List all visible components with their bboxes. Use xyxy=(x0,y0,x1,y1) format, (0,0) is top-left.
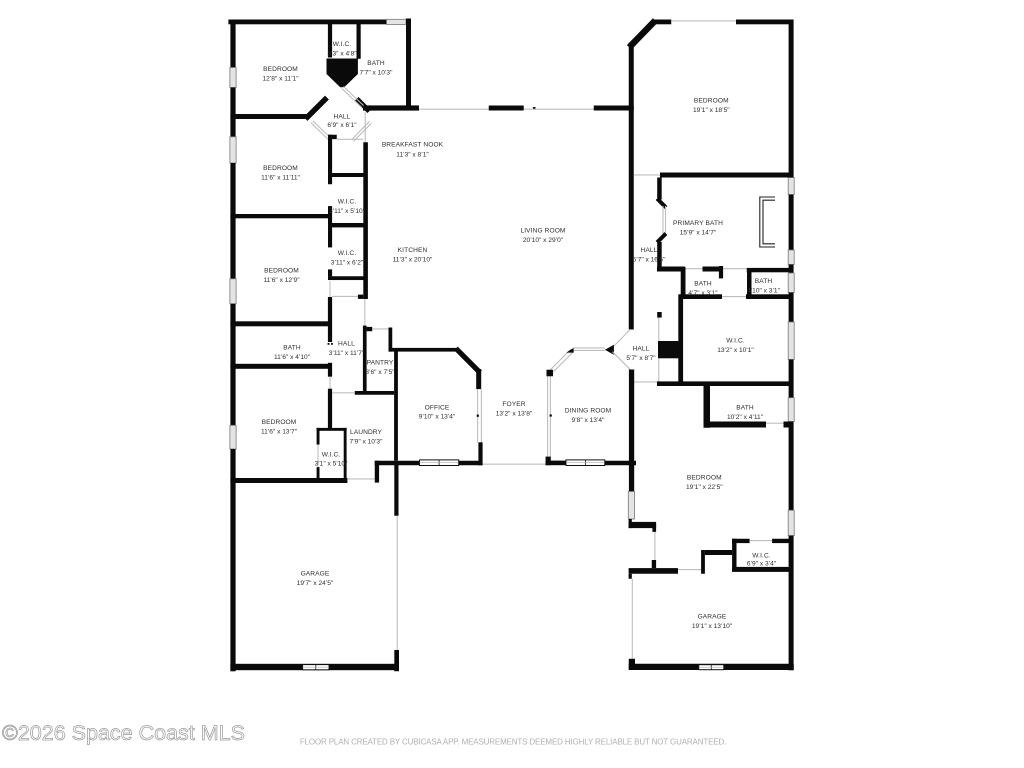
svg-text:9’10" x 13’4": 9’10" x 13’4" xyxy=(419,413,456,420)
svg-text:BATH: BATH xyxy=(736,405,754,412)
svg-text:11’3" x 20’10": 11’3" x 20’10" xyxy=(393,256,433,263)
svg-text:HALL: HALL xyxy=(633,346,650,353)
svg-text:4’7" x 3’1": 4’7" x 3’1" xyxy=(688,290,718,297)
svg-text:BEDROOM: BEDROOM xyxy=(264,268,299,275)
svg-text:11’6" x 13’7": 11’6" x 13’7" xyxy=(261,429,298,436)
svg-text:11’6" x 12’9": 11’6" x 12’9" xyxy=(263,277,300,284)
svg-text:19’7" x 24’5": 19’7" x 24’5" xyxy=(297,580,334,587)
svg-text:W.I.C.: W.I.C. xyxy=(338,199,357,206)
svg-text:W.I.C.: W.I.C. xyxy=(333,41,352,48)
svg-text:BREAKFAST NOOK: BREAKFAST NOOK xyxy=(382,142,444,149)
svg-text:3’11" x 5’10": 3’11" x 5’10" xyxy=(329,208,366,215)
svg-text:4’10" x 3’1": 4’10" x 3’1" xyxy=(747,288,781,295)
svg-text:W.I.C.: W.I.C. xyxy=(726,338,745,345)
svg-text:BEDROOM: BEDROOM xyxy=(262,419,297,426)
svg-text:15’9" x 14’7": 15’9" x 14’7" xyxy=(680,230,717,237)
svg-text:DINING ROOM: DINING ROOM xyxy=(565,408,612,415)
svg-text:GARAGE: GARAGE xyxy=(301,571,330,578)
svg-text:3’1" x 5’10": 3’1" x 5’10" xyxy=(315,461,349,468)
svg-text:W.I.C.: W.I.C. xyxy=(338,250,357,257)
svg-text:FLOOR PLAN CREATED BY CUBICASA: FLOOR PLAN CREATED BY CUBICASA APP. MEAS… xyxy=(300,738,726,747)
svg-text:PRIMARY BATH: PRIMARY BATH xyxy=(673,220,723,227)
svg-text:W.I.C.: W.I.C. xyxy=(752,553,771,560)
svg-text:BATH: BATH xyxy=(694,281,712,288)
svg-text:FOYER: FOYER xyxy=(502,401,525,408)
svg-text:BEDROOM: BEDROOM xyxy=(694,98,729,105)
svg-text:HALL: HALL xyxy=(641,247,658,254)
svg-text:9’8" x 13’4": 9’8" x 13’4" xyxy=(572,417,606,424)
svg-text:10’2" x 4’11": 10’2" x 4’11" xyxy=(727,414,764,421)
svg-text:BEDROOM: BEDROOM xyxy=(687,475,722,482)
svg-text:GARAGE: GARAGE xyxy=(698,614,727,621)
svg-text:6’9" x 3’4": 6’9" x 3’4" xyxy=(747,561,777,568)
svg-text:12’8" x 11’1": 12’8" x 11’1" xyxy=(262,76,299,83)
svg-text:OFFICE: OFFICE xyxy=(425,404,450,411)
svg-text:HALL: HALL xyxy=(334,113,351,120)
svg-text:LIVING ROOM: LIVING ROOM xyxy=(520,228,565,235)
svg-text:13’2" x 10’1": 13’2" x 10’1" xyxy=(717,347,754,354)
svg-text:3’6" x 7’5": 3’6" x 7’5" xyxy=(365,369,395,376)
svg-text:11’6" x 4’10": 11’6" x 4’10" xyxy=(274,354,311,361)
svg-text:7’7" x 10’3": 7’7" x 10’3" xyxy=(360,70,394,77)
svg-text:5’7" x 8’7": 5’7" x 8’7" xyxy=(626,355,656,362)
svg-text:BEDROOM: BEDROOM xyxy=(263,165,298,172)
svg-text:PANTRY: PANTRY xyxy=(367,360,394,367)
svg-text:BATH: BATH xyxy=(755,278,773,285)
svg-text:BATH: BATH xyxy=(283,345,301,352)
svg-text:19’1" x 13’10": 19’1" x 13’10" xyxy=(692,623,733,630)
svg-text:BEDROOM: BEDROOM xyxy=(263,66,298,73)
svg-text:BATH: BATH xyxy=(367,60,385,67)
svg-text:20’10" x 29’0": 20’10" x 29’0" xyxy=(523,237,564,244)
svg-text:LAUNDRY: LAUNDRY xyxy=(350,429,383,436)
svg-text:©2026 Space Coast MLS: ©2026 Space Coast MLS xyxy=(2,721,245,745)
svg-text:7’9" x 10’3": 7’9" x 10’3" xyxy=(350,439,384,446)
svg-text:11’6" x 11’11": 11’6" x 11’11" xyxy=(261,175,300,182)
svg-text:19’1" x 22’5": 19’1" x 22’5" xyxy=(686,484,723,491)
svg-text:3’3" x 4’8": 3’3" x 4’8" xyxy=(327,51,357,58)
svg-text:W.I.C.: W.I.C. xyxy=(322,452,341,459)
svg-text:KITCHEN: KITCHEN xyxy=(398,247,428,254)
svg-text:6’9" x 6’1": 6’9" x 6’1" xyxy=(327,122,357,129)
svg-text:3’11" x 11’7": 3’11" x 11’7" xyxy=(329,350,365,357)
svg-text:HALL: HALL xyxy=(338,341,355,348)
svg-text:13’2" x 13’8": 13’2" x 13’8" xyxy=(496,411,533,418)
svg-text:19’1" x 18’5": 19’1" x 18’5" xyxy=(693,107,730,114)
svg-text:5’7" x 16’5": 5’7" x 16’5" xyxy=(633,257,667,264)
svg-text:3’11" x 6’2": 3’11" x 6’2" xyxy=(331,260,364,267)
svg-text:11’3" x 8’1": 11’3" x 8’1" xyxy=(396,151,429,158)
